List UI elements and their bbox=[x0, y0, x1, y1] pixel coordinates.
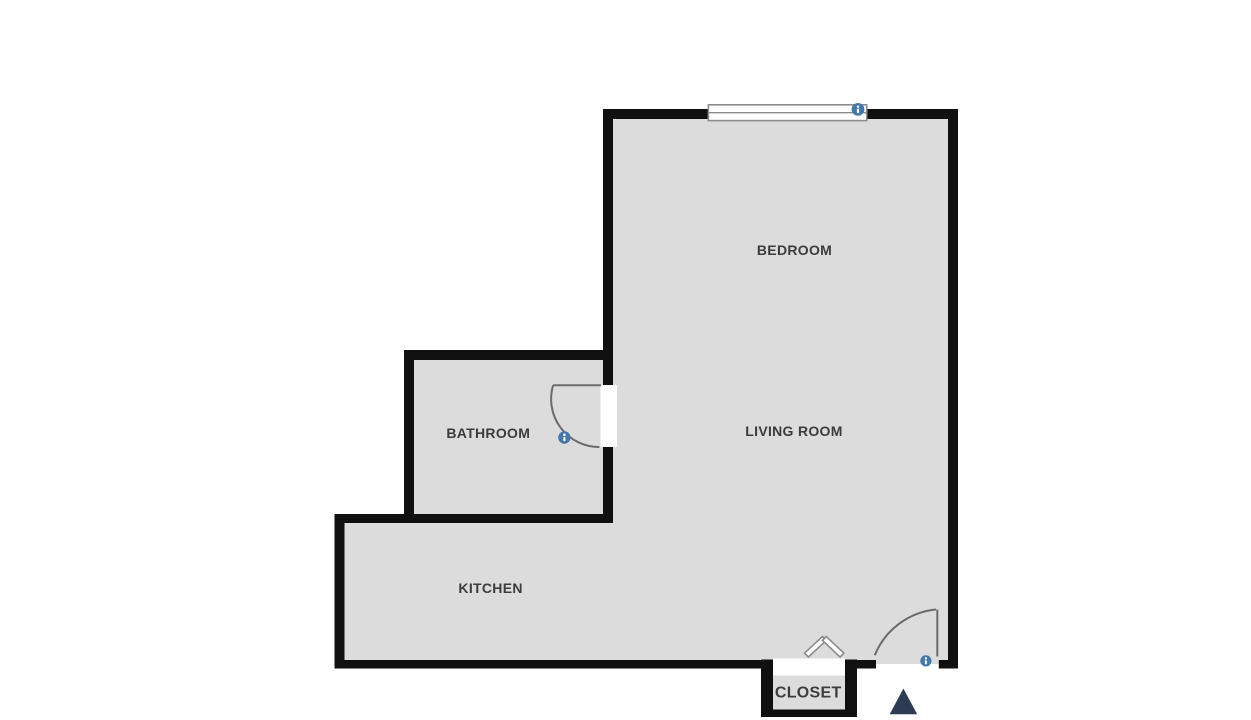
svg-text:BEDROOM: BEDROOM bbox=[757, 242, 832, 258]
svg-text:KITCHEN: KITCHEN bbox=[458, 580, 522, 596]
svg-text:LIVING ROOM: LIVING ROOM bbox=[745, 423, 842, 439]
svg-text:CLOSET: CLOSET bbox=[775, 685, 842, 702]
svg-text:BATHROOM: BATHROOM bbox=[446, 425, 530, 441]
